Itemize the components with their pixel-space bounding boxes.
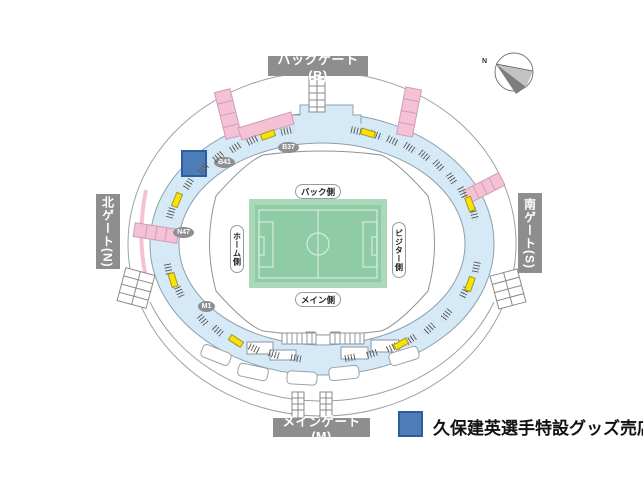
section-badge-n47: N47	[173, 227, 194, 238]
pitch	[249, 199, 387, 288]
compass-icon	[495, 53, 533, 94]
stand-label-main: メイン側	[295, 292, 341, 307]
legend-label: 久保建英選手特設グッズ売店	[433, 414, 643, 439]
stand-label-visitor: ビジター側	[392, 222, 406, 278]
stadium-map: バックゲート(B) メインゲート(M) 北ゲート(N) 南ゲート(S) バック側…	[0, 0, 643, 482]
gate-label-back: バックゲート(B)	[268, 56, 368, 76]
legend-swatch	[398, 411, 423, 437]
gate-label-north: 北ゲート(N)	[96, 194, 120, 269]
stand-label-back: バック側	[295, 184, 341, 199]
section-badge-b37: B37	[278, 142, 299, 153]
stand-label-home: ホーム側	[230, 225, 244, 273]
concourse-bump	[292, 105, 361, 124]
gate-label-south: 南ゲート(S)	[518, 193, 542, 273]
compass-north-label: N	[482, 58, 487, 65]
gate-label-main: メインゲート(M)	[273, 418, 370, 437]
section-badge-m1: M1	[198, 301, 215, 312]
